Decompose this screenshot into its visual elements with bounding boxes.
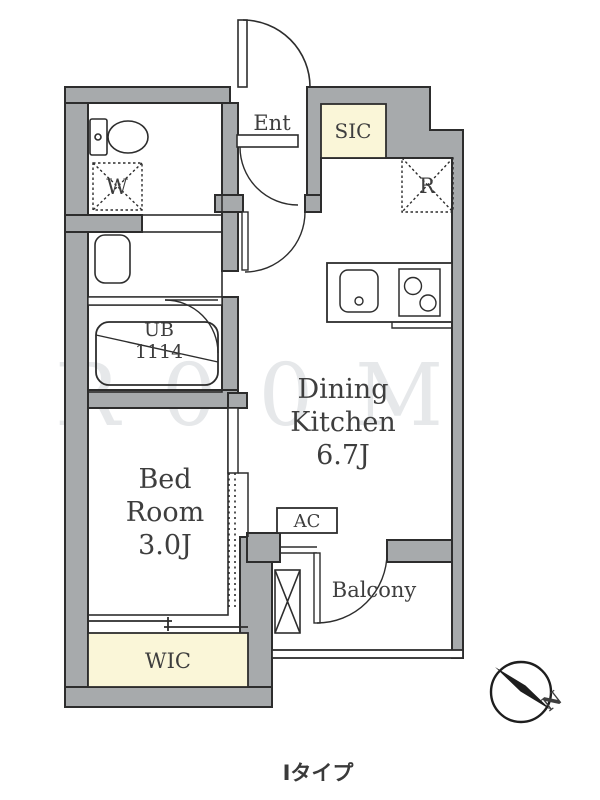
wall-bedroom-top-step [228,393,247,408]
entrance-door-arc [243,20,310,87]
ac-label: AC [293,511,321,532]
partition-wall [228,408,238,473]
stove-burner-1 [405,278,422,295]
closet-sliding-doors [88,617,248,631]
toilet-bowl [108,121,148,153]
toilet-flush-knob [95,134,101,140]
plan-type-caption: Iタイプ [283,761,355,785]
hall-door [237,135,298,205]
wall-balcony-left [247,533,280,562]
bed-room-size: 3.0J [138,530,192,561]
dining-kitchen-label-2: Kitchen [290,407,396,438]
stove-burner-2 [420,295,436,311]
entrance-door-leaf [238,20,247,87]
sink-drain [355,297,363,305]
partition-pocket [238,473,248,537]
floor-plan: R00M [0,0,600,800]
wall-corridor-left [215,195,243,212]
entrance-door [238,20,310,87]
hall-door-arc [240,147,298,205]
washer-label: W [106,175,128,199]
corridor-door [242,212,305,272]
basin-icon [95,235,130,283]
bed-room-label-1: Bed [138,464,191,495]
corridor-door-arc [245,212,305,272]
corridor-door-leaf [242,212,248,270]
refrigerator-label: R [419,174,436,198]
bed-room-label-2: Room [126,497,204,528]
wall-basin-ub [88,297,222,305]
balcony-door-leaf [314,553,320,623]
wall-bottom [65,687,272,707]
window-lines [280,547,317,553]
wall-ent-left [222,103,238,271]
balcony-label: Balcony [332,578,417,602]
sic-label: SIC [335,119,372,143]
kitchen-counter [327,263,452,328]
wall-toilet-stub [65,215,142,232]
wall-corridor-right [305,195,321,212]
dining-kitchen-size: 6.7J [316,440,370,471]
utility-box-cross [275,570,300,633]
wic-label: WIC [145,649,191,673]
entrance-label: Ent [253,111,291,135]
balcony-utility-icon [275,570,300,633]
wall-balcony-right [387,540,452,562]
toilet-icon [90,119,148,155]
wall-left [65,87,88,707]
compass: N [491,662,566,722]
unit-bath-label-2: 1114 [135,341,183,363]
floor-plan-drawing: R00M [0,0,600,800]
hall-door-leaf [237,135,298,147]
unit-bath-label-1: UB [144,319,174,341]
sliding-door-track [229,473,235,607]
kitchen-sink-icon [340,270,378,312]
wall-top-left [65,87,230,103]
balcony-railing [272,650,463,658]
dining-kitchen-label-1: Dining [298,374,389,405]
